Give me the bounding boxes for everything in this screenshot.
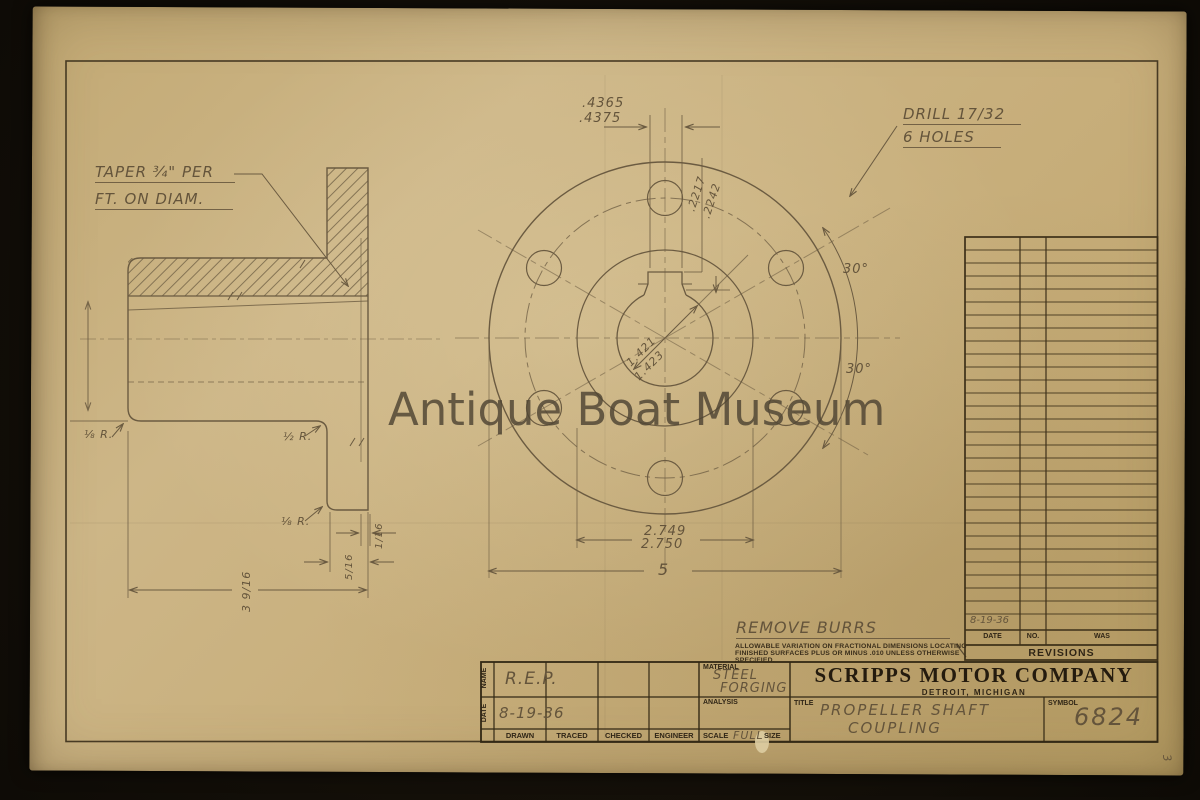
fillet-radius-left-label: ⅛ R. [84, 428, 113, 441]
engineer-label: ENGINEER [649, 731, 699, 740]
dim-overall-length: 3 9/16 [240, 571, 253, 612]
corner-page-number: 3 [1160, 753, 1174, 763]
revisions-col-date: DATE [965, 633, 1020, 640]
material-value-line2: FORGING [720, 681, 787, 696]
watermark-text: Antique Boat Museum [388, 383, 885, 436]
drawing-title-line2: COUPLING [848, 719, 942, 737]
revisions-col-was: WAS [1046, 633, 1158, 640]
date-value: 8-19-36 [499, 704, 565, 722]
drawing-title-line1: PROPELLER SHAFT [820, 701, 990, 719]
company-location: DETROIT, MICHIGAN [792, 688, 1156, 697]
drawn-label: DRAWN [494, 731, 546, 740]
title-label: TITLE [794, 700, 813, 707]
company-name: SCRIPPS MOTOR COMPANY [792, 663, 1156, 688]
revision-entry-date: 8-19-36 [970, 615, 1009, 626]
symbol-number: 6824 [1074, 703, 1143, 731]
outside-diameter-label: 5 [658, 560, 669, 579]
revisions-col-no: NO. [1020, 633, 1046, 640]
keyway-width-upper: .4365 [582, 96, 624, 111]
tolerance-note-line2: FINISHED SURFACES PLUS OR MINUS .010 UNL… [735, 650, 967, 657]
fillet-radius-half-label: ½ R. [283, 430, 312, 443]
name-value: R.E.P. [505, 669, 558, 689]
taper-note-line1: TAPER ¾" PER [95, 163, 235, 183]
angle-30-upper: 30° [843, 262, 869, 277]
dim-face-thickness: 1/16 [374, 523, 385, 549]
dim-flange-thickness: 5/16 [344, 554, 355, 580]
scanned-blueprint-scene: Antique Boat Museum TAPER ¾" PER FT. ON … [0, 0, 1200, 800]
analysis-label: ANALYSIS [703, 699, 738, 706]
fillet-radius-eighth-label: ⅛ R. [281, 515, 310, 528]
angle-30-lower: 30° [846, 362, 872, 377]
date-row-label: DATE [481, 701, 488, 725]
drill-note-line1: DRILL 17/32 [903, 105, 1021, 125]
size-label: SIZE [764, 731, 781, 740]
traced-label: TRACED [546, 731, 598, 740]
tolerance-note: ALLOWABLE VARIATION ON FRACTIONAL DIMENS… [735, 643, 967, 665]
drill-note-line2: 6 HOLES [903, 128, 1001, 148]
annotation-layer: Antique Boat Museum TAPER ¾" PER FT. ON … [0, 0, 1200, 800]
tolerance-note-line1: ALLOWABLE VARIATION ON FRACTIONAL DIMENS… [735, 643, 967, 650]
name-row-label: NAME [481, 666, 488, 690]
revisions-title: REVISIONS [965, 647, 1158, 659]
scale-label: SCALE [703, 731, 728, 740]
company-banner: SCRIPPS MOTOR COMPANY DETROIT, MICHIGAN [792, 663, 1156, 697]
boss-dia-lower: 2.750 [641, 537, 683, 552]
remove-burrs-note: REMOVE BURRS [736, 618, 950, 639]
checked-label: CHECKED [598, 731, 649, 740]
scale-value: FULL [733, 729, 764, 742]
keyway-width-lower: .4375 [579, 111, 621, 126]
taper-note-line2: FT. ON DIAM. [95, 190, 233, 210]
